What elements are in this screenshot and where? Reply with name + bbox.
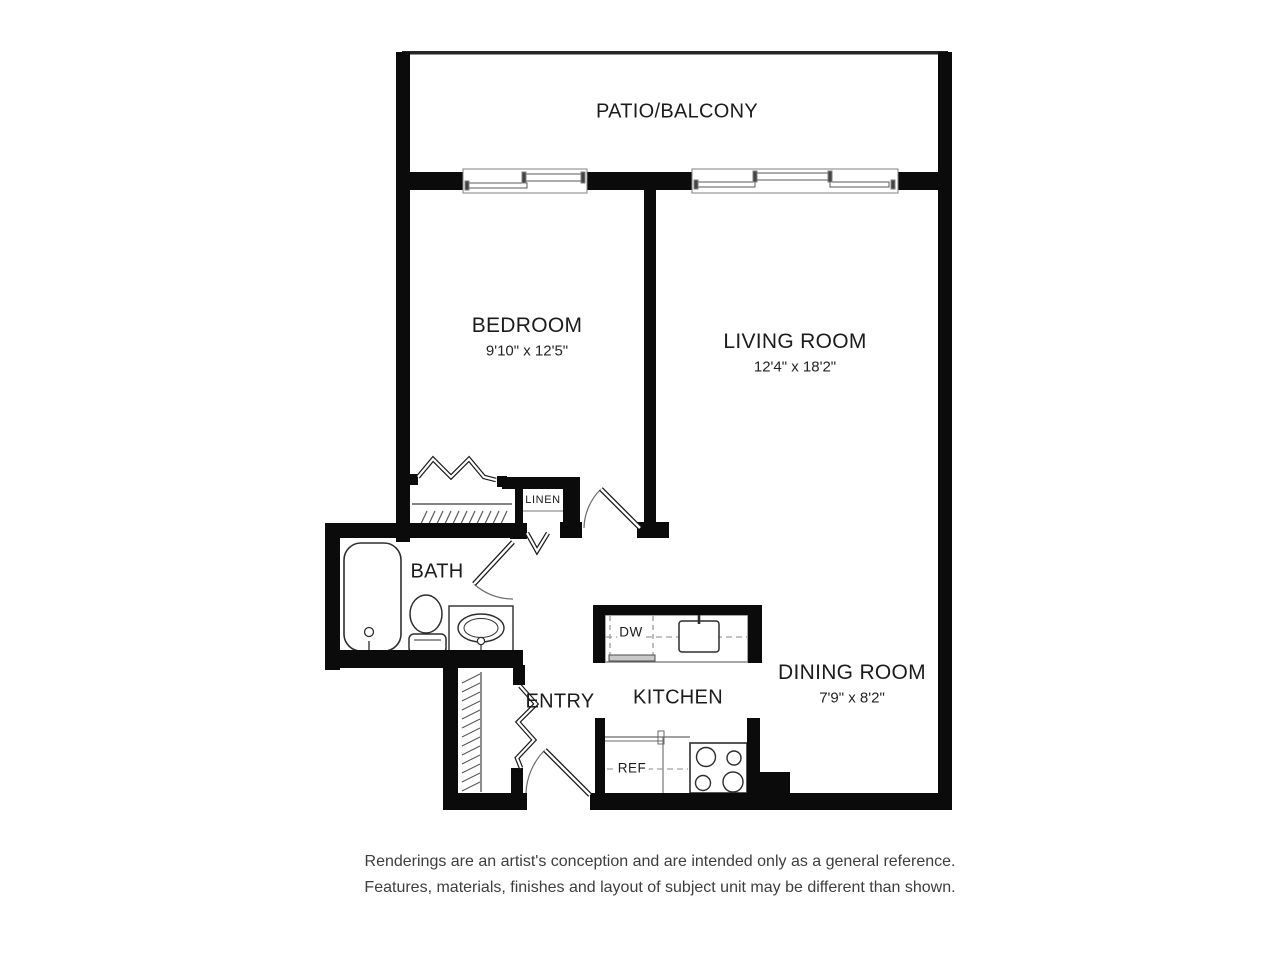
dishwasher-label: DW [617, 625, 645, 640]
disclaimer-line-1: Renderings are an artist's conception an… [365, 853, 956, 871]
patio-label: PATIO/BALCONY [596, 101, 758, 124]
patio-railing [402, 51, 948, 55]
bifold-bedroom-closet [418, 459, 496, 480]
living-room-label: LIVING ROOM [723, 330, 866, 354]
entry-label: ENTRY [526, 691, 595, 714]
door-bath-arc [474, 542, 513, 599]
entry-closet [462, 672, 481, 792]
kitchen-label: KITCHEN [633, 687, 723, 710]
bedroom-label: BEDROOM [472, 314, 583, 338]
door-entry-arc [526, 750, 590, 795]
door-bedroom-arc [584, 489, 640, 528]
stove [690, 743, 747, 793]
window-slider-living [692, 169, 898, 193]
bifold-linen [527, 533, 548, 551]
window-slider-bedroom [463, 169, 587, 193]
sink-vanity [449, 606, 513, 654]
dishwasher-tray [609, 655, 655, 661]
disclaimer-line-2: Features, materials, finishes and layout… [364, 879, 955, 897]
living-room-dimensions: 12'4" x 18'2" [754, 359, 836, 376]
dining-room-dimensions: 7'9" x 8'2" [819, 690, 885, 707]
toilet [409, 595, 446, 653]
floorplan-drawing [0, 0, 1280, 960]
linen-label: LINEN [523, 494, 562, 506]
bathtub [344, 543, 401, 651]
refrigerator-label: REF [616, 761, 649, 776]
bath-label: BATH [410, 561, 463, 584]
floorplan-page: PATIO/BALCONY BEDROOM 9'10" x 12'5" LIVI… [0, 0, 1280, 960]
bedroom-dimensions: 9'10" x 12'5" [486, 343, 568, 360]
dining-room-label: DINING ROOM [778, 661, 926, 685]
